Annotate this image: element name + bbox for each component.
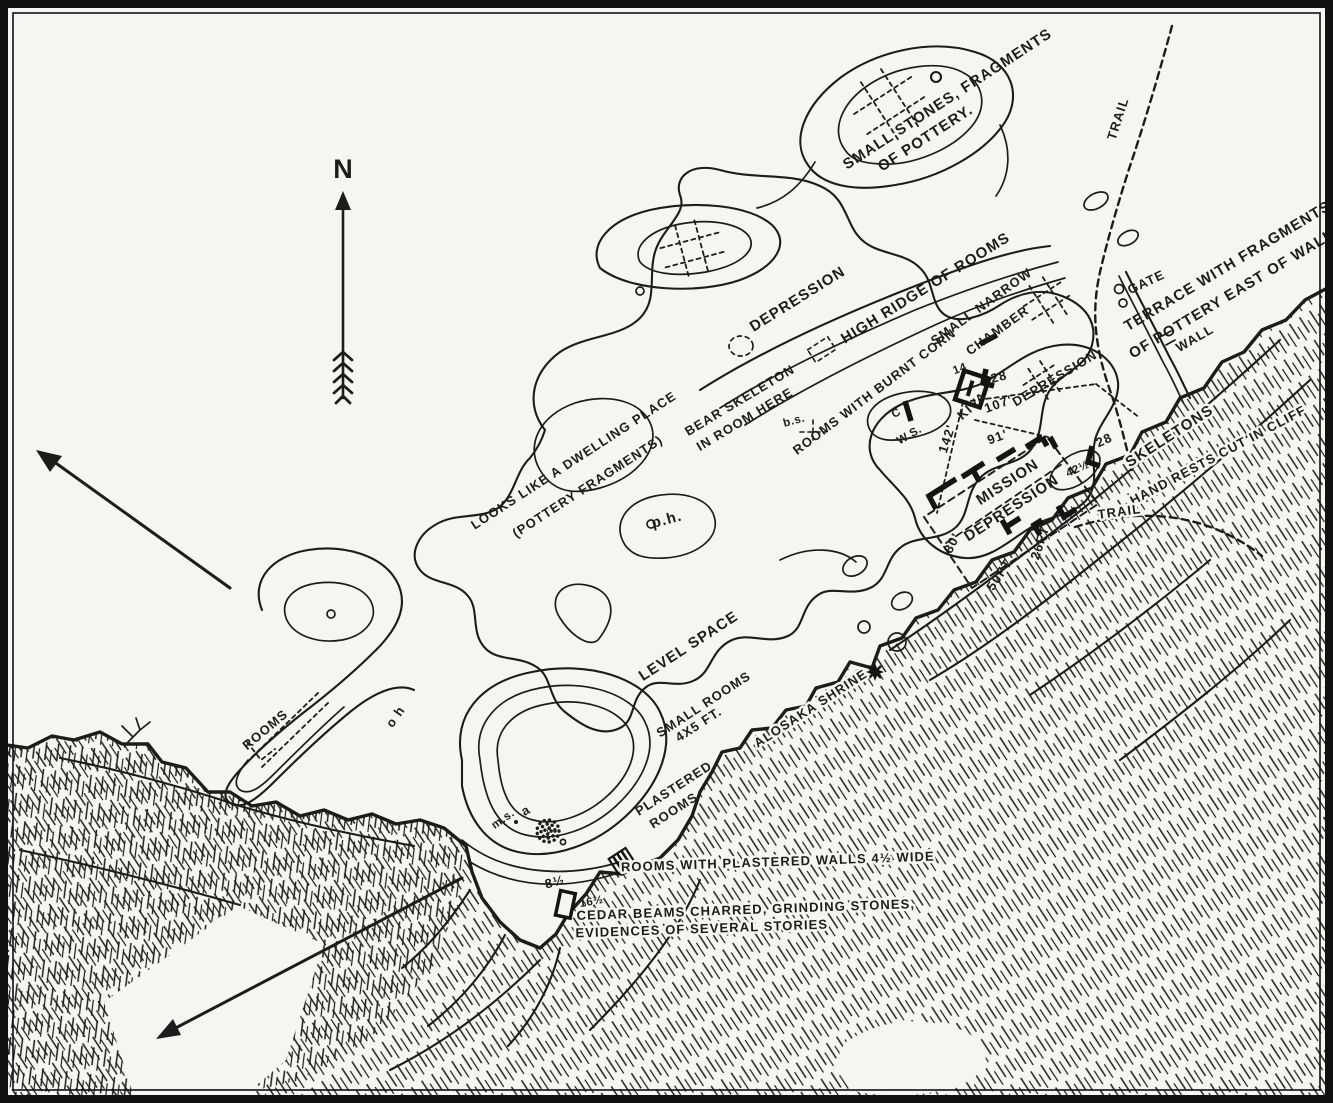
small-room-rect: [555, 891, 575, 919]
map-page: N SMALL STONES, FRAGMENTS OF POTTERY. TR…: [0, 0, 1333, 1103]
north-label: N: [333, 154, 353, 184]
archaeological-site-map: N SMALL STONES, FRAGMENTS OF POTTERY. TR…: [0, 0, 1333, 1103]
